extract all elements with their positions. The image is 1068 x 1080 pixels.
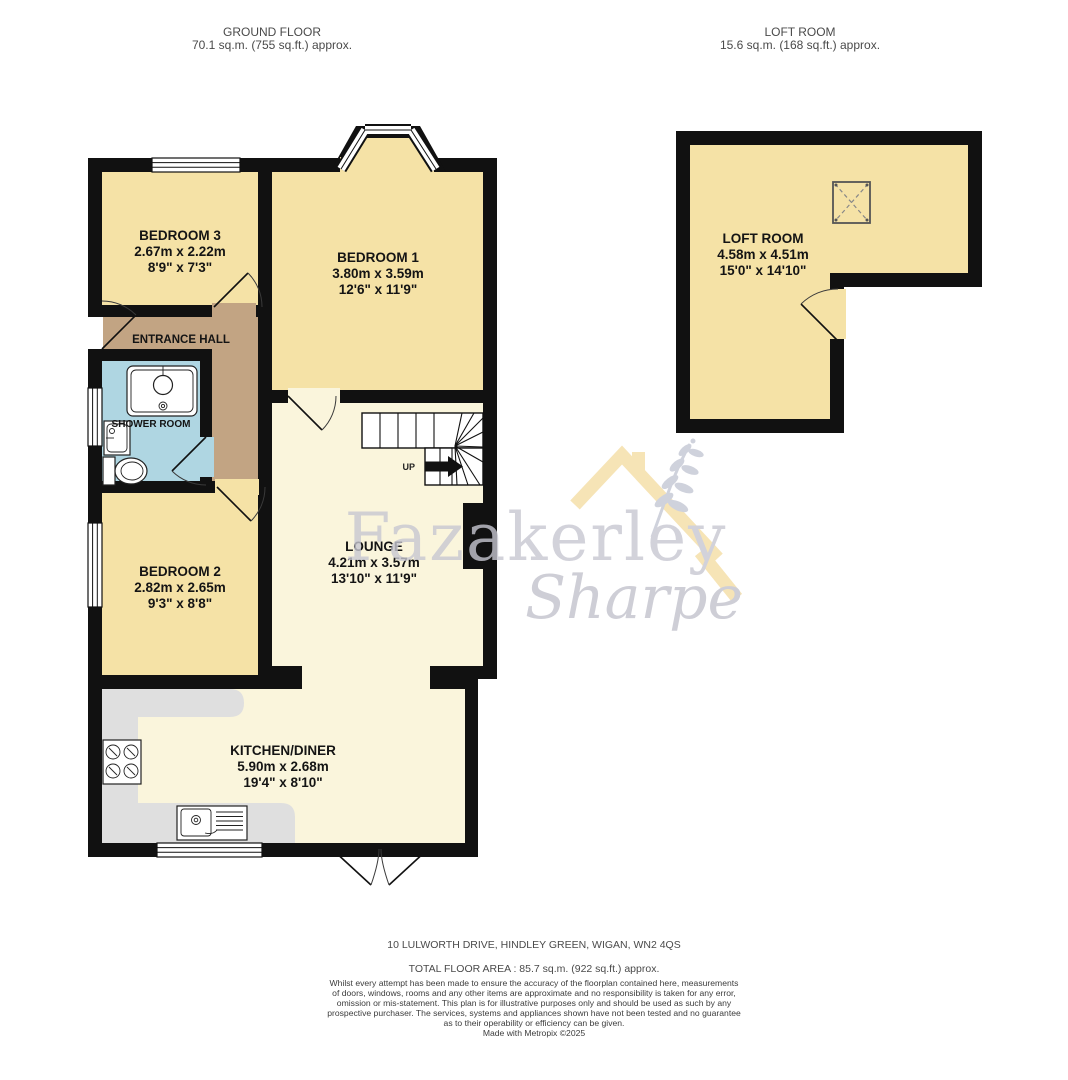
footer-metropix-credit: Made with Metropix ©2025: [483, 1028, 586, 1038]
window-kitchen: [157, 843, 262, 857]
window-bedroom3: [152, 158, 240, 172]
window-bedroom2: [88, 523, 102, 607]
footer-disclaimer-line: omission or mis-statement. This plan is …: [337, 998, 732, 1008]
footer-disclaimer-line: prospective purchaser. The services, sys…: [327, 1008, 741, 1018]
footer-disclaimer-line: Whilst every attempt has been made to en…: [330, 978, 739, 988]
watermark-line2: Sharpe: [525, 563, 743, 633]
kitchen-metric: 5.90m x 2.68m: [237, 759, 329, 774]
room-bedroom1-fill: [272, 172, 483, 390]
door-gap-bedroom3: [212, 303, 256, 319]
stairs-up-label: UP: [402, 462, 415, 472]
floorplan-canvas: GROUND FLOOR 70.1 sq.m. (755 sq.ft.) app…: [0, 0, 1068, 1080]
ground-floor-header-title: GROUND FLOOR: [223, 25, 321, 39]
bedroom2-metric: 2.82m x 2.65m: [134, 580, 226, 595]
footer-total-area: TOTAL FLOOR AREA : 85.7 sq.m. (922 sq.ft…: [409, 963, 660, 975]
kitchen-sink-icon: [177, 806, 247, 840]
door-gap-bedroom1: [288, 388, 340, 405]
lounge-kitchen-opening: [302, 660, 430, 692]
loft-imperial: 15'0" x 14'10": [720, 263, 807, 278]
bedroom3-metric: 2.67m x 2.22m: [134, 244, 226, 259]
door-gap-front: [87, 317, 103, 349]
loft-metric: 4.58m x 4.51m: [717, 247, 809, 262]
loft-header-area: 15.6 sq.m. (168 sq.ft.) approx.: [720, 38, 880, 52]
toilet-icon: [103, 457, 147, 485]
kitchen-imperial: 19'4" x 8'10": [243, 775, 322, 790]
window-shower: [88, 388, 102, 446]
shower-name: SHOWER ROOM: [112, 419, 191, 430]
hall-name: ENTRANCE HALL: [132, 334, 230, 346]
loft-header-title: LOFT ROOM: [764, 25, 835, 39]
door-gap-loft: [828, 289, 846, 339]
hob-icon: [103, 740, 141, 784]
shower-tray-icon: [127, 366, 197, 416]
footer-address: 10 LULWORTH DRIVE, HINDLEY GREEN, WIGAN,…: [387, 939, 680, 951]
kitchen-name: KITCHEN/DINER: [230, 743, 336, 758]
footer-disclaimer-line: of doors, windows, rooms and any other i…: [332, 988, 736, 998]
bedroom2-imperial: 9'3" x 8'8": [148, 596, 212, 611]
bedroom1-metric: 3.80m x 3.59m: [332, 266, 424, 281]
ground-floor-header-area: 70.1 sq.m. (755 sq.ft.) approx.: [192, 38, 352, 52]
bedroom3-imperial: 8'9" x 7'3": [148, 260, 212, 275]
bedroom2-name: BEDROOM 2: [139, 564, 221, 579]
bedroom1-name: BEDROOM 1: [337, 250, 419, 265]
footer-disclaimer-line: as to their operability or efficiency ca…: [444, 1018, 625, 1028]
loft-name: LOFT ROOM: [723, 231, 804, 246]
bedroom3-name: BEDROOM 3: [139, 228, 221, 243]
bedroom1-imperial: 12'6" x 11'9": [339, 282, 418, 297]
